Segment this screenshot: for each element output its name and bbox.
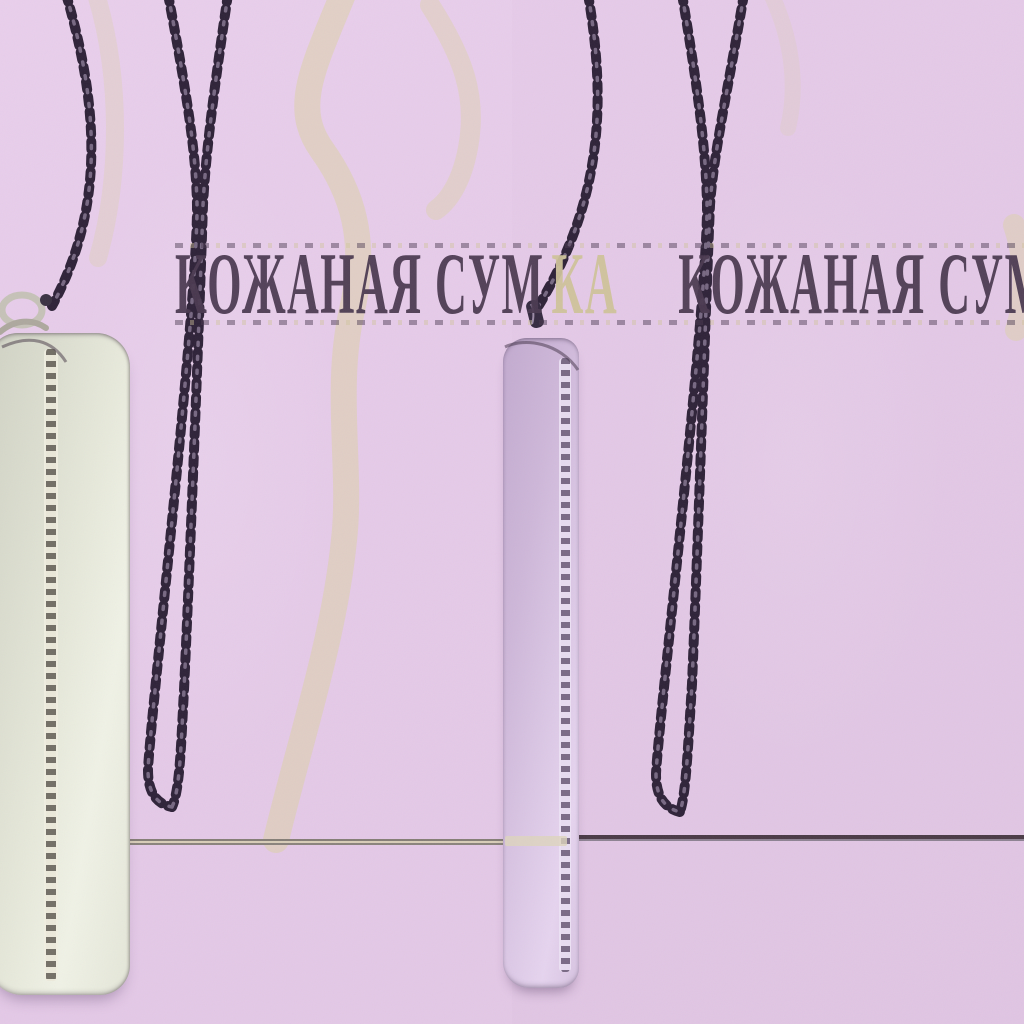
photo-canvas: { "scene": { "description": "Product pho… <box>0 0 1024 1024</box>
caption-segment-dark-2: КОЖАНАЯ СУМ <box>618 236 1024 333</box>
cream-bag-zipper <box>44 349 58 981</box>
lilac-bag-zipper <box>559 358 571 972</box>
cream-phone-bag <box>0 333 130 995</box>
backdrop-right-panel <box>512 0 1024 1024</box>
lilac-phone-bag <box>503 338 579 988</box>
table-line-over-bag <box>505 836 567 846</box>
caption-segment-beige: КА <box>545 236 619 333</box>
overlay-caption: КОЖАНАЯ СУМКАКОЖАНАЯ СУМ <box>175 248 1024 322</box>
caption-segment-dark-1: КОЖАНАЯ СУМ <box>175 236 545 333</box>
